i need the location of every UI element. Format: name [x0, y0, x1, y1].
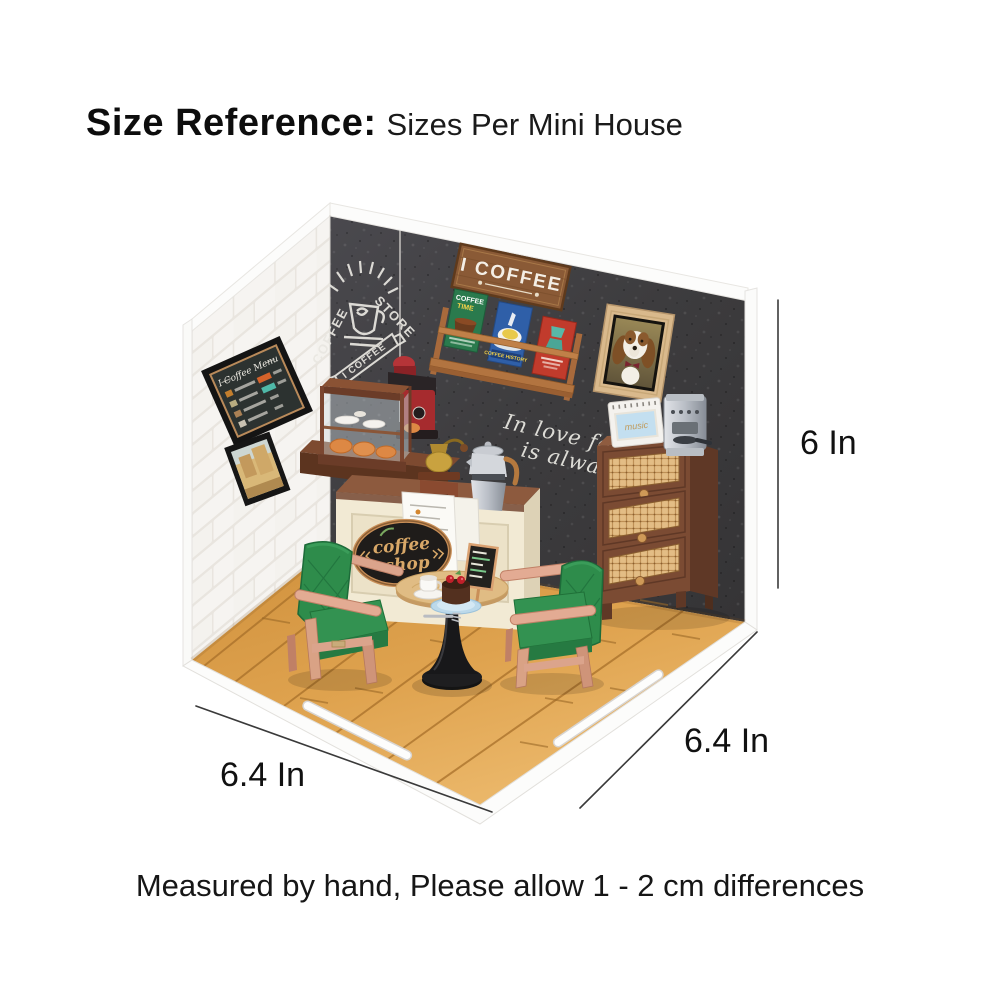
width-dimension-label-right: 6.4 In [684, 722, 769, 761]
wall-right-edge [745, 288, 757, 630]
radio: music [608, 397, 664, 447]
size-reference-page: Size Reference:Sizes Per Mini House [0, 0, 1000, 1000]
dog-portrait [594, 304, 675, 402]
espresso-machine [664, 394, 710, 456]
measurement-note: Measured by hand, Please allow 1 - 2 cm … [0, 868, 1000, 904]
wall-left-edge [183, 319, 192, 666]
width-dimension-label-left: 6.4 In [220, 756, 305, 795]
height-dimension-label: 6 In [800, 424, 857, 463]
pastry-display-case [318, 378, 410, 472]
miniature-room-illustration: I Coffee Menu [0, 0, 1000, 1000]
